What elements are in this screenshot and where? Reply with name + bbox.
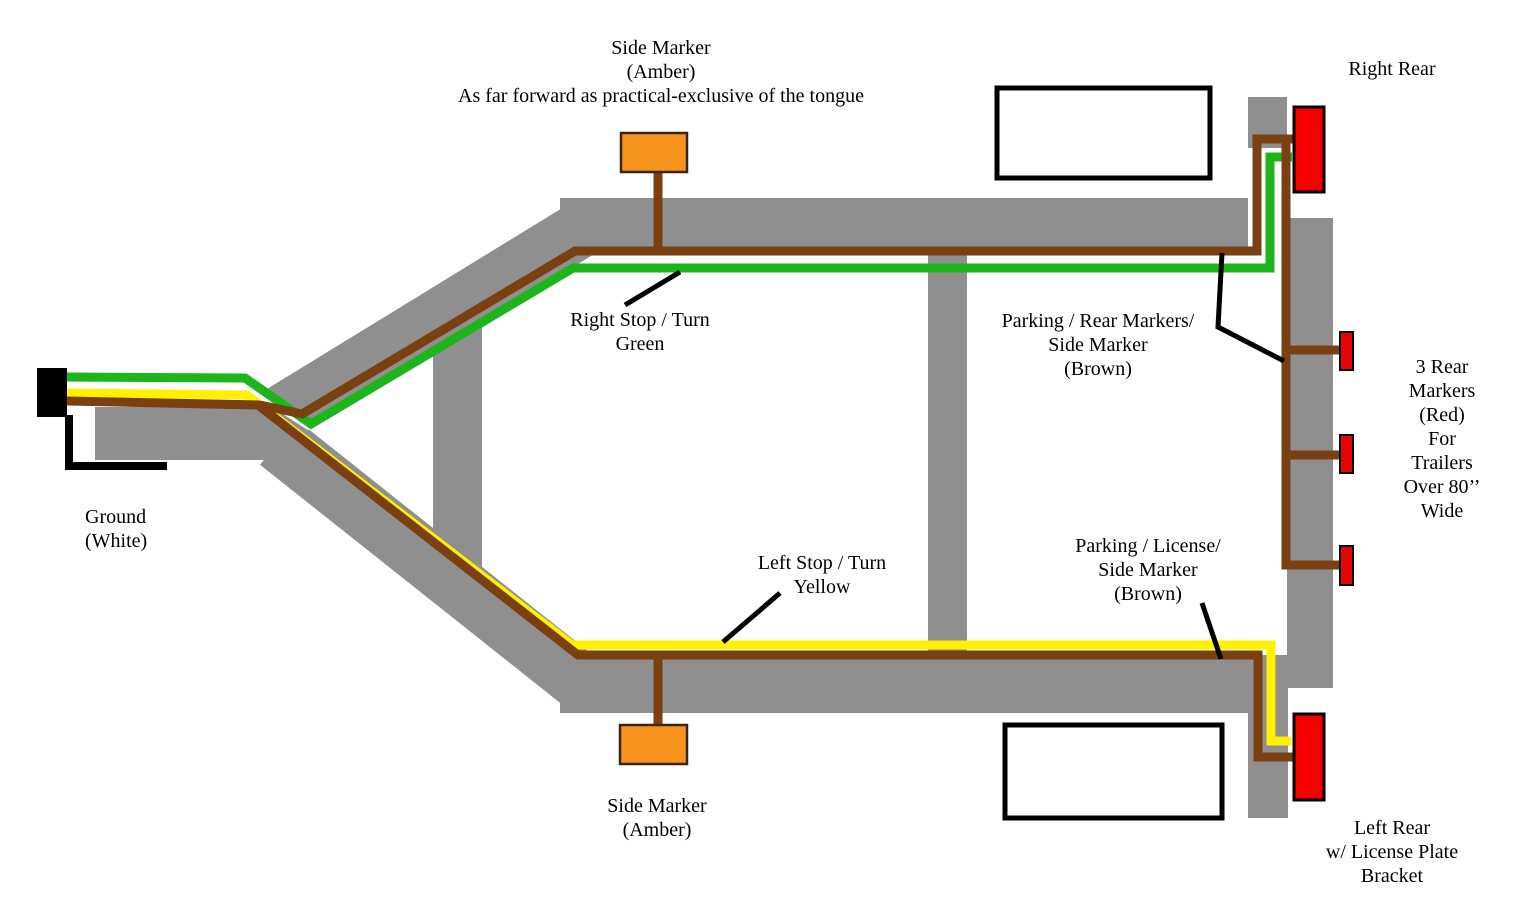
callout-right-stop-turn bbox=[625, 272, 680, 305]
hitch-connector bbox=[37, 368, 67, 417]
top-blank-box bbox=[997, 88, 1210, 178]
diagram-canvas bbox=[0, 0, 1534, 906]
label-side-marker-bottom: Side Marker (Amber) bbox=[607, 794, 706, 842]
frame-bottom-rail bbox=[560, 655, 1255, 713]
green-right-stop-turn-wire bbox=[67, 157, 1292, 424]
label-three-rear-markers: 3 Rear Markers (Red) For Trailers Over 8… bbox=[1396, 355, 1488, 523]
top-side-marker-light bbox=[621, 133, 687, 172]
bottom-side-marker-light bbox=[620, 725, 687, 764]
label-right-rear: Right Rear bbox=[1348, 57, 1435, 81]
rear-marker-light-3 bbox=[1340, 546, 1353, 585]
bottom-blank-box bbox=[1005, 725, 1222, 818]
callout-left-stop-turn bbox=[723, 593, 780, 642]
label-left-rear: Left Rear w/ License Plate Bracket bbox=[1326, 816, 1458, 888]
rear-marker-light-2 bbox=[1340, 435, 1353, 473]
right-rear-light bbox=[1294, 107, 1324, 192]
trailer-wiring-diagram: Side Marker (Amber) As far forward as pr… bbox=[0, 0, 1534, 906]
trailer-frame bbox=[95, 97, 1333, 818]
label-parking-rear-markers: Parking / Rear Markers/ Side Marker (Bro… bbox=[1002, 309, 1195, 381]
rear-marker-light-1 bbox=[1340, 332, 1353, 370]
left-rear-light bbox=[1294, 714, 1324, 800]
frame-middle-crossmember bbox=[928, 255, 967, 655]
label-ground: Ground (White) bbox=[85, 505, 147, 553]
label-side-marker-top: Side Marker (Amber) As far forward as pr… bbox=[458, 36, 864, 108]
label-left-stop-turn: Left Stop / Turn Yellow bbox=[758, 551, 886, 599]
label-parking-license: Parking / License/ Side Marker (Brown) bbox=[1075, 534, 1221, 606]
frame-top-rail bbox=[560, 198, 1248, 255]
label-right-stop-turn: Right Stop / Turn Green bbox=[570, 308, 710, 356]
